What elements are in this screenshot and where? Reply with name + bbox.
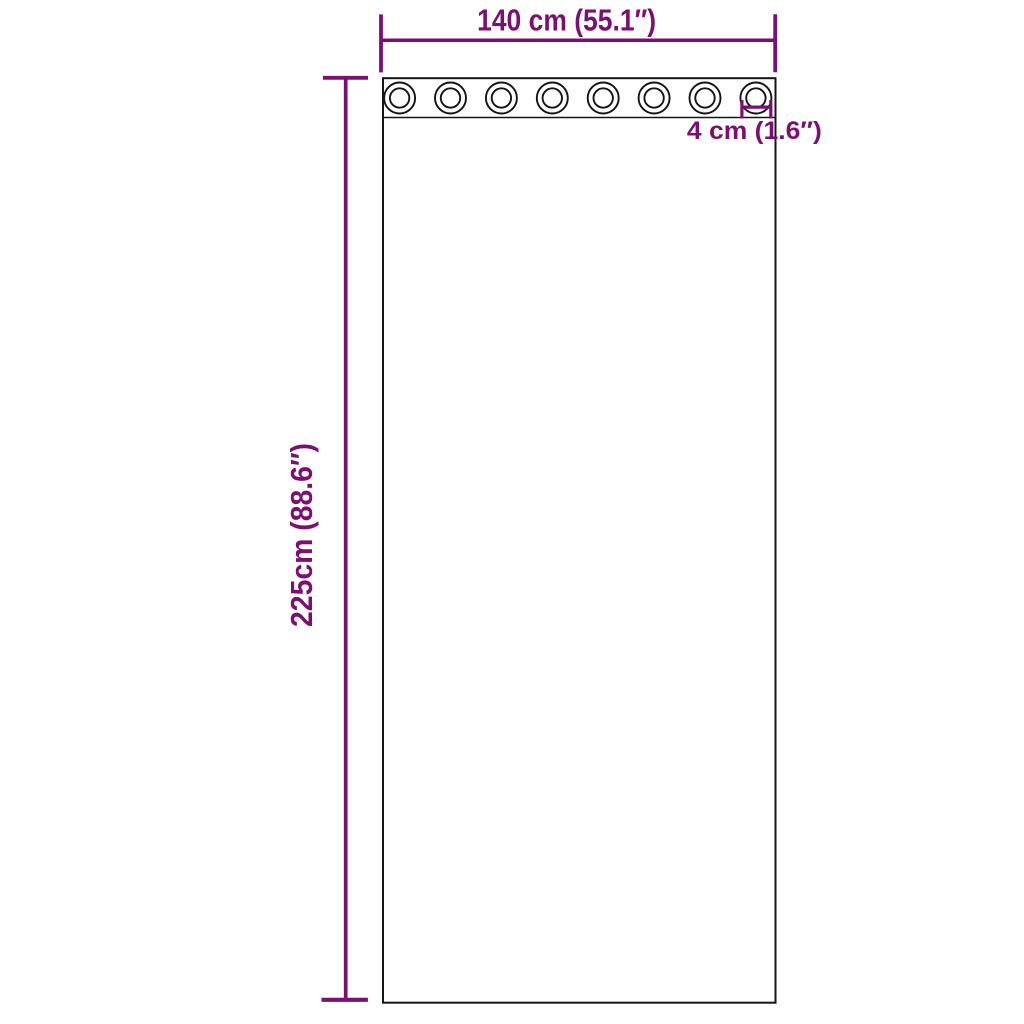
svg-text:140 cm (55.1″): 140 cm (55.1″): [477, 2, 656, 37]
svg-text:4 cm (1.6″): 4 cm (1.6″): [687, 117, 822, 145]
svg-text:225cm (88.6″): 225cm (88.6″): [284, 443, 319, 627]
